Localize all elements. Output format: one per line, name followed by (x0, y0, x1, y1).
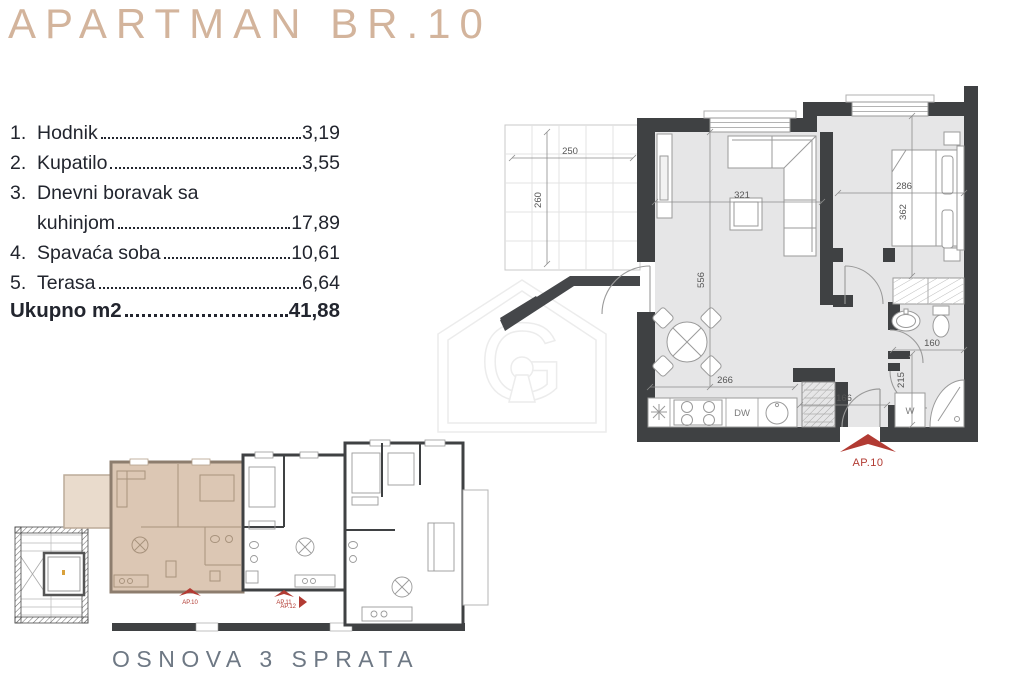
elevator (44, 553, 84, 595)
plan-caption: OSNOVA 3 SPRATA (112, 646, 419, 673)
ap12-site-label: AP.12 (280, 604, 296, 610)
bed (892, 132, 964, 261)
room-area: 17,89 (291, 208, 340, 238)
svg-text:321: 321 (734, 190, 750, 201)
washing-machine: W (895, 393, 925, 427)
dotted-leader (99, 287, 302, 289)
total-value: 41,88 (289, 299, 340, 323)
kitchen-counter: DW (648, 398, 797, 427)
dotted-leader (125, 314, 288, 317)
room-label: Hodnik (37, 118, 98, 148)
room-label: Terasa (37, 268, 96, 298)
room-number: 2. (10, 148, 37, 178)
room-number: 4. (10, 238, 37, 268)
dotted-leader (118, 227, 290, 229)
dishwasher-label: DW (734, 408, 750, 419)
ap12-arrow-icon (299, 596, 307, 608)
room-number: 5. (10, 268, 37, 298)
building-overview-plan: AP.10 AP.11 AP.12 (0, 435, 510, 640)
room-row: 1. Hodnik 3,19 (10, 118, 340, 148)
dotted-leader (101, 137, 301, 139)
svg-text:266: 266 (717, 375, 733, 386)
wardrobe (893, 278, 964, 304)
unit-ap11 (243, 452, 345, 590)
living-room-window (704, 111, 796, 132)
tv-cabinet (657, 134, 672, 218)
room-area: 10,61 (291, 238, 340, 268)
room-row: 5. Terasa 6,64 (10, 268, 340, 298)
dotted-leader (110, 167, 301, 169)
room-label: kuhinjom (37, 208, 115, 238)
svg-text:286: 286 (896, 181, 912, 192)
room-label: Dnevni boravak sa (37, 178, 199, 208)
toilet-icon (933, 306, 949, 337)
svg-text:160: 160 (924, 338, 940, 349)
room-row: 3. Dnevni boravak sa (10, 178, 340, 208)
apartment-marker-label: AP.10 (852, 457, 883, 469)
highlighted-unit-ap10 (64, 459, 243, 592)
room-row: 4. Spavaća soba 10,61 (10, 238, 340, 268)
svg-text:166: 166 (836, 393, 852, 404)
svg-text:215: 215 (896, 372, 907, 388)
page-title: APARTMAN BR.10 (8, 0, 492, 50)
svg-text:260: 260 (533, 192, 544, 208)
svg-text:250: 250 (562, 146, 578, 157)
sink-symbol-icon (651, 404, 667, 420)
room-area: 3,19 (302, 118, 340, 148)
room-label: Kupatilo (37, 148, 107, 178)
svg-text:556: 556 (696, 272, 707, 288)
coffee-table (730, 198, 762, 230)
room-number: 3. (10, 178, 37, 208)
total-area-row: Ukupno m2 41,88 (10, 299, 340, 323)
roof-edge-decoration (500, 276, 640, 331)
svg-text:362: 362 (898, 204, 909, 220)
bedroom-window (846, 95, 934, 116)
room-area: 3,55 (302, 148, 340, 178)
terrace-door (602, 266, 650, 314)
apartment-floor-plan: DW (500, 80, 1013, 480)
dotted-leader (164, 257, 291, 259)
room-number: 1. (10, 118, 37, 148)
washing-machine-label: W (906, 406, 915, 417)
room-list: 1. Hodnik 3,19 2. Kupatilo 3,55 3. Dnevn… (10, 118, 340, 298)
unit-ap12 (345, 440, 488, 625)
room-area: 6,64 (302, 268, 340, 298)
utility-shaft (802, 382, 835, 427)
total-label: Ukupno m2 (10, 299, 122, 323)
stair-core (15, 527, 88, 623)
ap10-site-label: AP.10 (182, 600, 198, 606)
room-label: Spavaća soba (37, 238, 161, 268)
room-row: kuhinjom 17,89 (10, 208, 340, 238)
room-row: 2. Kupatilo 3,55 (10, 148, 340, 178)
floor-plan-page: APARTMAN BR.10 1. Hodnik 3,19 2. Kupatil… (0, 0, 1013, 682)
